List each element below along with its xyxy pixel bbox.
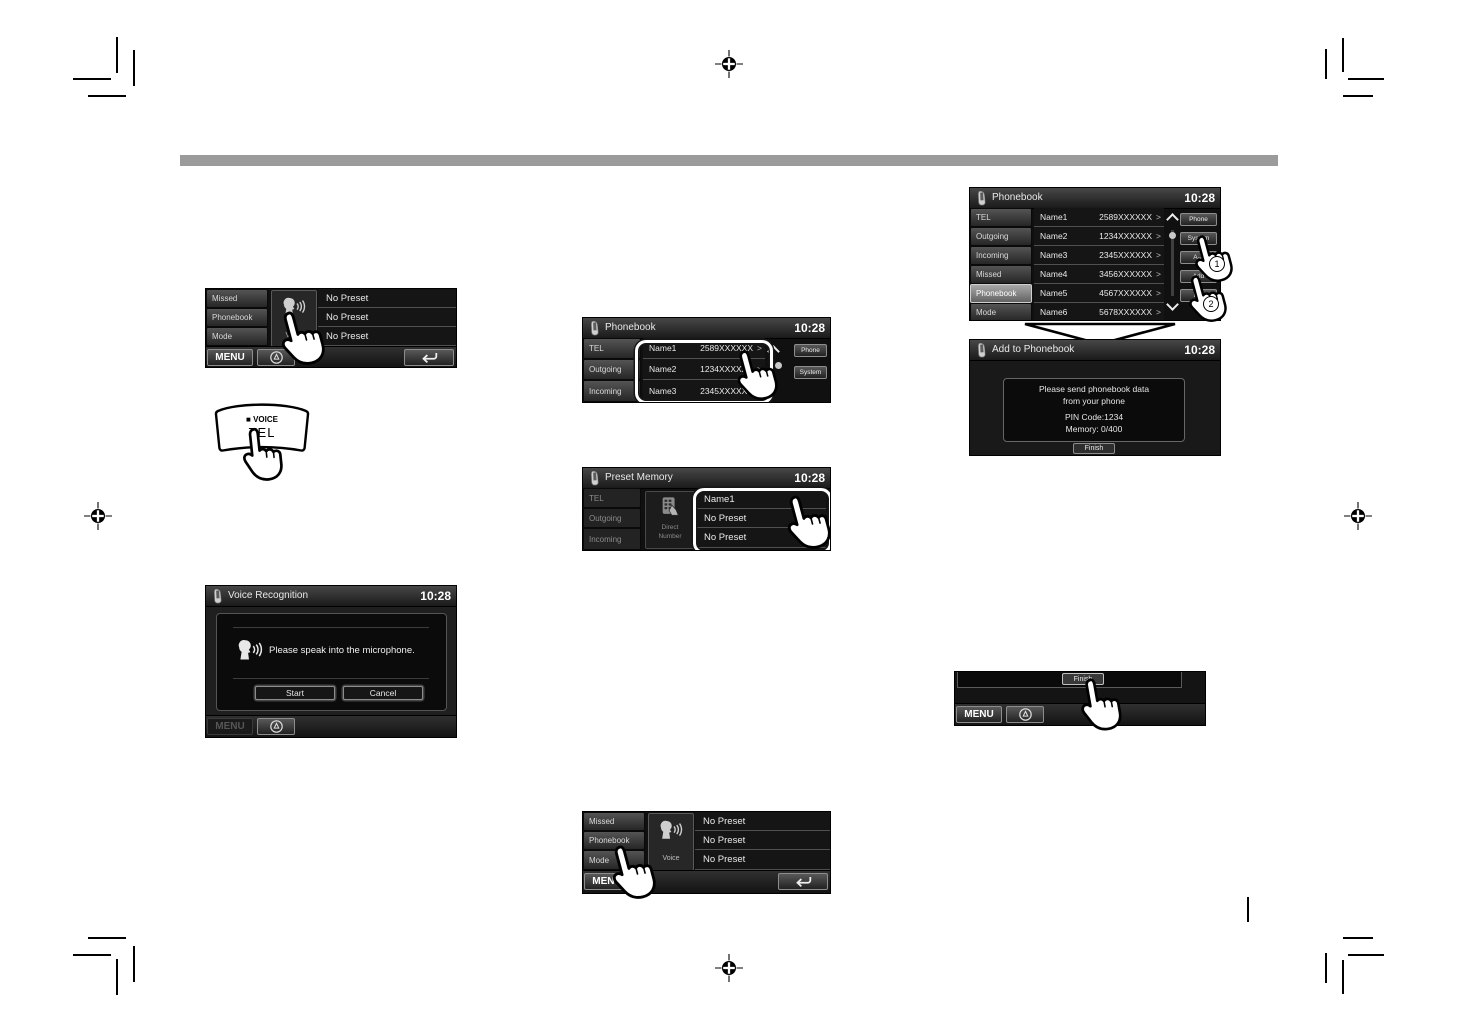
registration-mark-bottom [715,954,743,982]
crop-mark [1343,95,1373,97]
pointing-hand-cursor [1072,672,1127,735]
phonebook-entry[interactable]: Name5 4567XXXXXX > [1034,284,1164,303]
screen-phonebook-preview: Phonebook 10:28 TEL Outgoing Incoming Na… [583,318,830,402]
crop-mark [133,946,135,982]
voice-dial-button[interactable]: Voice [648,813,694,871]
tab-outgoing[interactable]: Outgoing [583,508,641,528]
screen-voice-recognition: Voice Recognition 10:28 Please speak int… [206,586,456,737]
tab-tel[interactable]: TEL [970,208,1032,227]
chevron-right-icon: > [1156,231,1161,241]
manual-page: Missed Phonebook Mode Voice No Preset No… [0,0,1457,1032]
chevron-right-icon: > [1156,212,1161,222]
screen-add-to-phonebook: Add to Phonebook 10:28 Please send phone… [970,340,1220,455]
clock: 10:28 [794,471,825,485]
key-top-label: ■ VOICE [212,415,312,424]
phonebook-entry[interactable]: Name6 5678XXXXXX > [1034,303,1164,320]
phonebook-entry[interactable]: Name1 2589XXXXXX > [1034,208,1164,227]
clock: 10:28 [794,321,825,335]
title-bar: Add to Phonebook 10:28 [970,340,1220,361]
phone-button[interactable]: Phone [794,344,827,357]
preset-slot[interactable]: No Preset [695,850,830,870]
screen-title: Phonebook [605,322,656,333]
tab-missed[interactable]: Missed [970,265,1032,284]
clock: 10:28 [1184,191,1215,205]
menu-button[interactable]: MENU [207,349,253,366]
phone-button[interactable]: Phone [1180,213,1217,226]
system-button[interactable]: System [794,366,827,379]
chevron-right-icon: > [1156,288,1161,298]
phonebook-entry[interactable]: Name3 2345XXXXXX > [1034,246,1164,265]
chevron-right-icon: > [1156,307,1161,317]
phone-shortcut-button[interactable] [1006,706,1044,723]
title-bar: Phonebook 10:28 [970,188,1220,209]
clock: 10:28 [420,589,451,603]
phone-shortcut-button[interactable] [257,718,295,735]
phonebook-entry[interactable]: Name4 3456XXXXXX > [1034,265,1164,284]
crop-mark [88,937,126,939]
registration-mark-right [1344,502,1372,530]
tab-incoming[interactable]: Incoming [970,246,1032,265]
handset-icon [212,588,223,604]
preset-slot[interactable]: No Preset [318,308,456,327]
crop-mark [88,95,126,97]
circle-arrow-icon [1018,707,1033,722]
tab-missed[interactable]: Missed [583,812,645,831]
scroll-up-icon[interactable] [1166,213,1179,226]
crop-mark [116,959,118,995]
tab-tel[interactable]: TEL [583,488,641,508]
voice-panel: Please speak into the microphone. Start … [216,613,447,711]
chevron-right-icon: > [1156,269,1161,279]
step-badge-1: 1 [1209,256,1225,272]
scrollbar-track[interactable] [1171,230,1174,296]
title-bar: Voice Recognition 10:28 [206,586,456,607]
return-arrow-icon [419,351,439,364]
tab-outgoing[interactable]: Outgoing [583,359,641,380]
phonebook-entry[interactable]: Name2 1234XXXXXX > [1034,227,1164,246]
crop-mark [1348,78,1384,80]
crop-mark [1348,954,1384,956]
crop-mark [73,78,111,80]
bottom-bar: MENU [206,715,456,737]
chevron-right-icon: > [1156,250,1161,260]
screen-title: Phonebook [992,192,1043,203]
tab-phonebook[interactable]: Phonebook [206,308,268,327]
crop-mark [116,37,118,73]
tab-incoming[interactable]: Incoming [583,528,641,550]
menu-button[interactable]: MENU [207,718,253,735]
finish-button[interactable]: Finish [1073,443,1115,454]
voice-prompt: Please speak into the microphone. [269,645,415,656]
tab-mode[interactable]: Mode [206,327,268,346]
divider [233,678,429,679]
direct-number-button[interactable]: Direct Number [645,491,695,549]
crop-mark [1325,49,1327,79]
clock: 10:28 [1184,343,1215,357]
back-button[interactable] [778,873,828,890]
return-arrow-icon [793,875,813,888]
screen-phone-menu-top: Missed Phonebook Mode Voice No Preset No… [206,289,456,367]
crop-mark [133,50,135,86]
crop-mark [1342,960,1344,994]
crop-mark [1325,953,1327,983]
keypad-hand-icon [659,496,681,518]
preset-slot[interactable]: No Preset [695,812,830,831]
tab-incoming[interactable]: Incoming [583,380,641,402]
voice-button-label: Voice [649,855,693,862]
circle-arrow-icon [269,719,284,734]
title-bar: Phonebook 10:28 [583,318,830,339]
crop-mark [73,954,111,956]
back-button[interactable] [404,349,454,366]
handset-icon [976,190,987,206]
crop-mark [1343,937,1373,939]
title-bar: Preset Memory 10:28 [583,468,830,489]
preset-slot[interactable]: No Preset [318,327,456,346]
scrollbar-thumb[interactable] [1169,232,1176,239]
handset-icon [589,320,600,336]
tab-phonebook[interactable]: Phonebook [970,284,1032,303]
preset-slot[interactable]: No Preset [318,289,456,308]
tab-outgoing[interactable]: Outgoing [970,227,1032,246]
cancel-button[interactable]: Cancel [343,686,423,700]
preset-slot[interactable]: No Preset [695,831,830,850]
divider [233,627,429,628]
tab-tel[interactable]: TEL [583,338,641,359]
start-button[interactable]: Start [255,686,335,700]
message-panel: Please send phonebook data from your pho… [1003,378,1185,442]
scroll-down-icon[interactable] [1166,298,1179,311]
handset-icon [976,342,987,358]
tab-mode[interactable]: Mode [970,303,1032,320]
tab-missed[interactable]: Missed [206,289,268,308]
crop-mark [1342,38,1344,72]
step-badge-2: 2 [1203,296,1219,312]
speaking-head-icon [659,818,683,842]
pointing-hand-cursor [236,424,288,485]
speaking-head-icon [237,638,263,662]
screen-title: Voice Recognition [228,590,308,601]
screen-title: Preset Memory [605,472,673,483]
menu-button[interactable]: MENU [956,706,1002,723]
fold-mark [1247,897,1249,922]
screen-phonebook-full: Phonebook 10:28 TEL Outgoing Incoming Mi… [970,188,1220,320]
registration-mark-left [84,502,112,530]
handset-icon [589,470,600,486]
header-divider-bar [180,155,1278,166]
registration-mark-top [715,50,743,78]
screen-title: Add to Phonebook [992,344,1074,355]
